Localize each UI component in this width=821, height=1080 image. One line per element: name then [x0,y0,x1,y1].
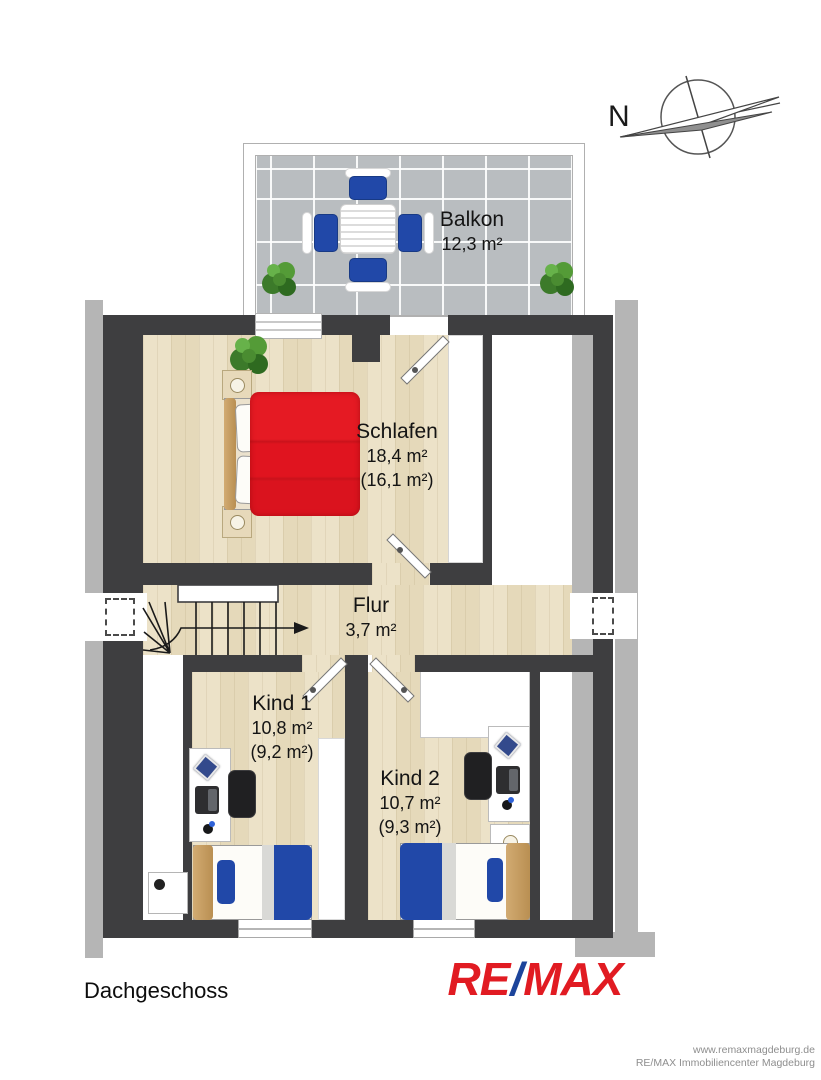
kind1-nightstand [148,872,188,914]
wall-top-right [448,315,613,335]
red-duvet [250,392,360,516]
bed-headboard [224,398,236,510]
footer-credit: www.remaxmagdeburg.de RE/MAX Immobilienc… [495,1044,815,1070]
mouse-icon [203,824,213,834]
wall-kind1-top [183,655,302,672]
balcony-chair [349,258,387,282]
kind1-closet [318,738,345,920]
wall-bottom-2 [312,920,413,938]
wall-schlafen-bottom-right [430,563,492,585]
desk-chair [464,752,492,800]
window-bottom-kind1 [238,918,312,938]
plant-icon [540,262,578,300]
kind2-door-threshold [372,655,415,672]
window-left-symbol [105,598,135,636]
chair-backrest [424,212,434,254]
label-kind1: Kind 1 10,8 m² (9,2 m²) [251,690,314,764]
label-schlafen: Schlafen 18,4 m² (16,1 m²) [356,418,438,492]
label-balkon: Balkon 12,3 m² [440,206,504,257]
balcony-chair [314,214,338,252]
pillow [217,860,235,904]
remax-logo: RE/MAX [415,956,655,1002]
lamp-icon [154,879,165,890]
label-kind2: Kind 2 10,7 m² (9,3 m²) [379,765,442,839]
bed-headboard [506,843,530,920]
window-bottom-kind2 [413,918,475,938]
label-flur: Flur 3,7 m² [345,592,396,643]
blue-duvet [400,843,442,920]
chair-backrest [345,282,391,292]
wall-bottom-1 [143,920,238,938]
wall-bottom-3 [475,920,613,938]
kind1-door-threshold [302,655,345,672]
balcony-chair [349,176,387,200]
wall-top-middle [322,315,390,335]
schlafen-knee-area [448,335,483,563]
wall-kind2-right [530,672,540,932]
bed-headboard [193,845,213,920]
wall-schlafen-bottom-left [143,563,372,585]
balcony-chair [398,214,422,252]
pillow [487,858,503,902]
blue-duvet [274,845,312,920]
balcony-table [340,204,396,254]
chair-backrest [302,212,312,254]
mouse-icon [502,800,512,810]
footer-company: RE/MAX Immobiliencenter Magdeburg [495,1057,815,1070]
nightstand [222,506,252,538]
wall-stub [352,335,380,362]
monitor-icon [496,766,520,794]
window-right-symbol [592,597,614,635]
desk-chair [228,770,256,818]
wall-schlafen-right [483,335,492,563]
wall-divider [345,655,368,938]
footer-url: www.remaxmagdeburg.de [495,1044,815,1057]
schlafen-door-threshold [372,563,430,585]
wall-kind2-top [415,655,593,672]
monitor-icon [195,786,219,814]
duvet-fold [442,843,456,920]
plant-icon [262,262,300,300]
compass-north-label: N [608,100,630,134]
floorplan-canvas: N [0,0,821,1080]
nightstand [222,370,252,400]
floor-title: Dachgeschoss [84,978,228,1004]
compass-rose-icon [620,76,780,158]
